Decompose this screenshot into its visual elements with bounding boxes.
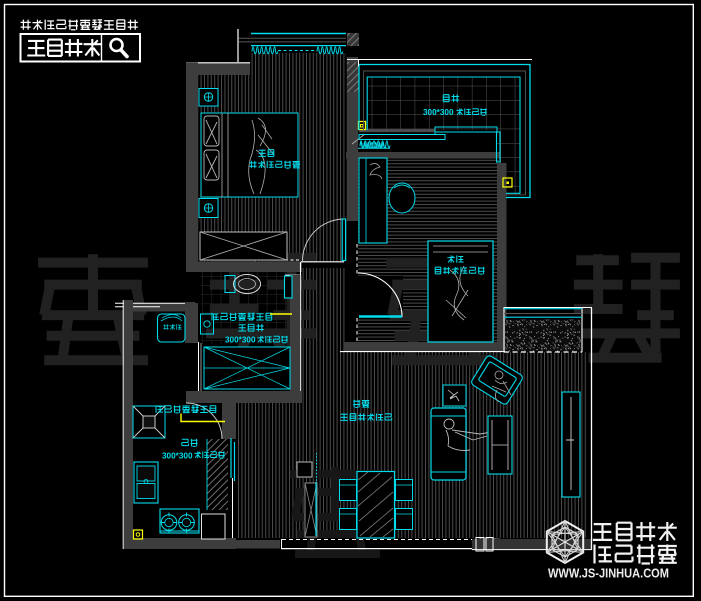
svg-text:WWW.JS-JINHUA.COM: WWW.JS-JINHUA.COM (548, 566, 669, 581)
svg-text:300*300: 300*300 (162, 452, 193, 461)
svg-text:300*300: 300*300 (225, 336, 256, 345)
svg-text:300*300: 300*300 (423, 108, 454, 117)
